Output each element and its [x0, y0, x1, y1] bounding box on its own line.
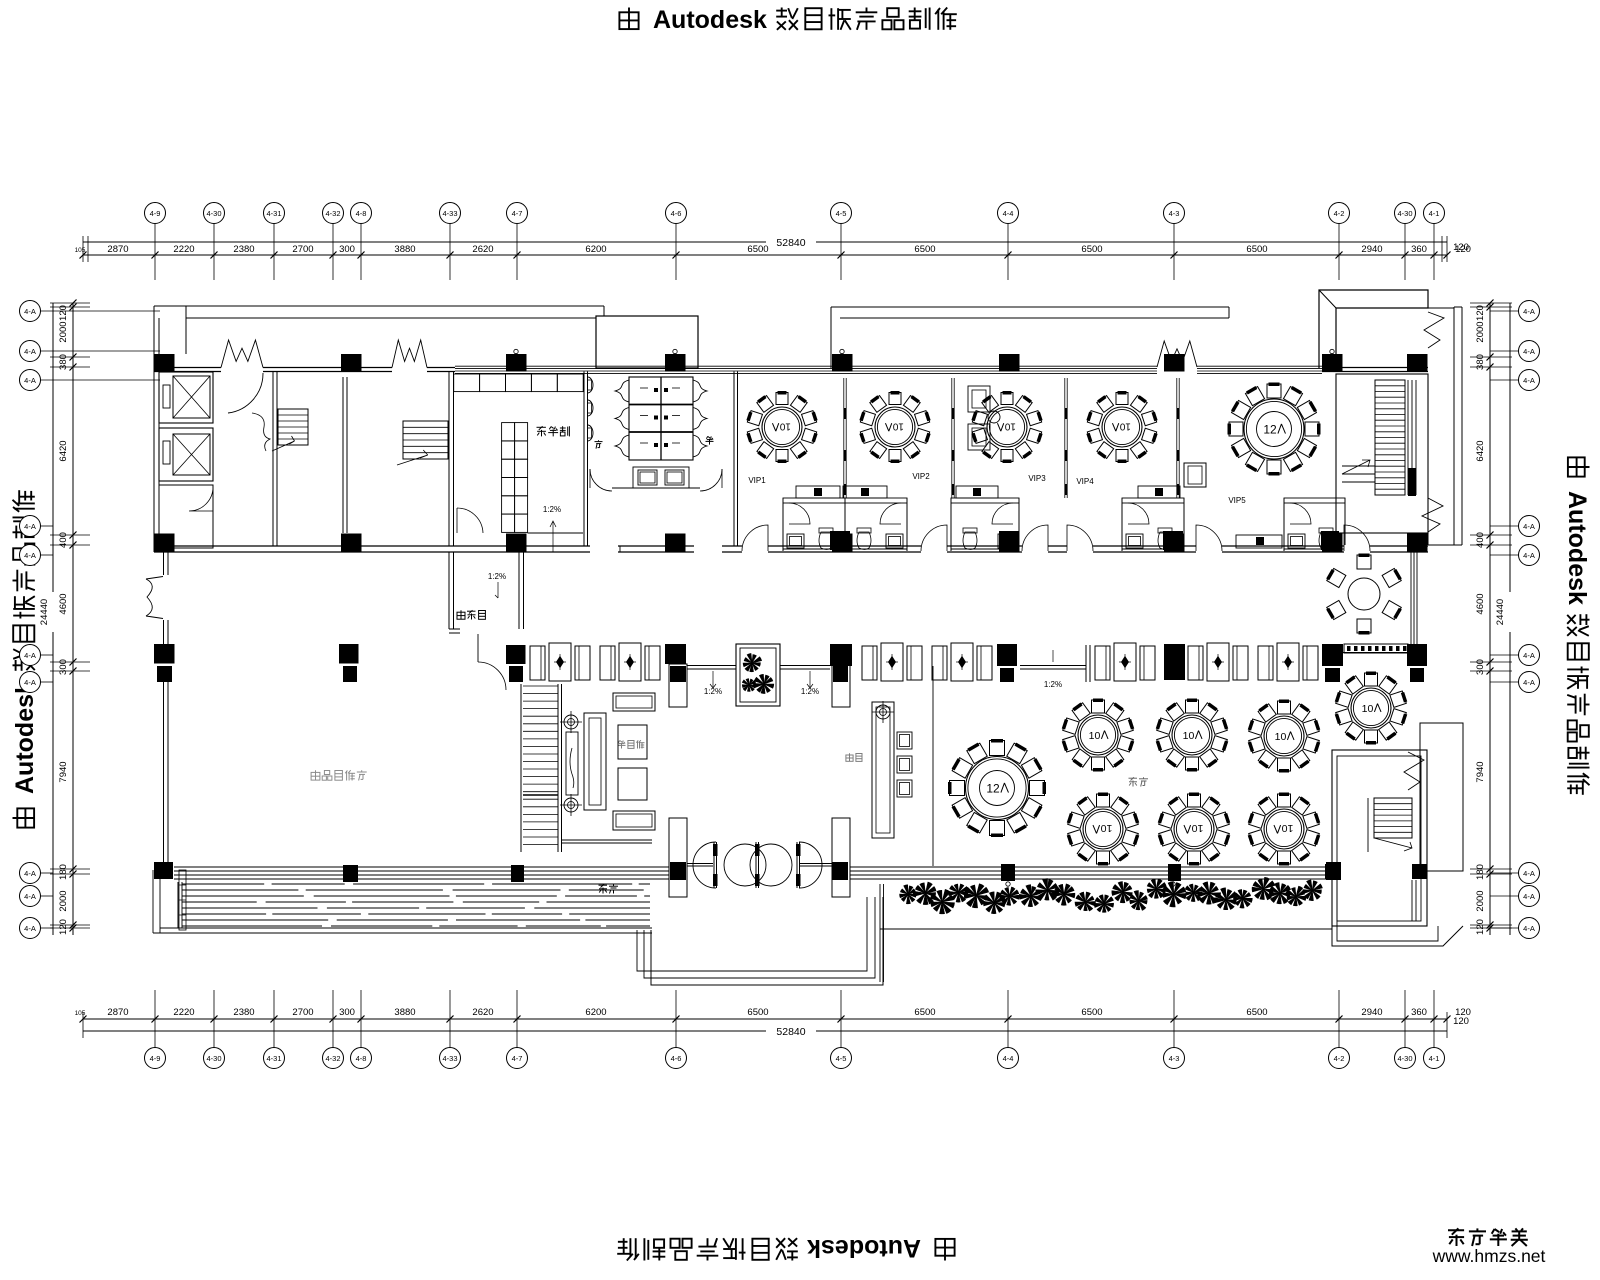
svg-text:2220: 2220 [173, 1007, 194, 1018]
svg-text:6200: 6200 [585, 1007, 606, 1018]
svg-text:10: 10 [1275, 731, 1287, 743]
svg-text:10: 10 [1089, 730, 1101, 742]
svg-text:12: 12 [1263, 422, 1277, 436]
svg-text:300: 300 [58, 659, 69, 675]
svg-text:6500: 6500 [1246, 244, 1267, 255]
svg-text:120: 120 [1475, 305, 1486, 321]
svg-text:4-3: 4-3 [1169, 209, 1180, 218]
svg-text:Autodesk: Autodesk [653, 6, 767, 34]
svg-text:Autodesk: Autodesk [1563, 491, 1591, 605]
svg-text:4-4: 4-4 [1003, 1054, 1014, 1063]
svg-text:2870: 2870 [107, 244, 128, 255]
svg-text:3880: 3880 [394, 244, 415, 255]
svg-text:4-7: 4-7 [512, 1054, 523, 1063]
svg-text:4-8: 4-8 [356, 1054, 367, 1063]
svg-text:4-A: 4-A [24, 376, 36, 385]
svg-text:4-9: 4-9 [150, 209, 161, 218]
svg-text:3880: 3880 [394, 1007, 415, 1018]
svg-text:380: 380 [1475, 354, 1486, 370]
svg-text:4-7: 4-7 [512, 209, 523, 218]
svg-text:VIP3: VIP3 [1028, 474, 1046, 483]
svg-text:380: 380 [58, 354, 69, 370]
svg-text:6420: 6420 [58, 440, 69, 461]
svg-text:6500: 6500 [914, 1007, 935, 1018]
svg-text:4-A: 4-A [24, 651, 36, 660]
svg-text:4-32: 4-32 [325, 209, 340, 218]
svg-text:120: 120 [58, 305, 69, 321]
svg-text:10: 10 [779, 420, 791, 431]
svg-text:2700: 2700 [292, 244, 313, 255]
svg-text:10: 10 [1101, 822, 1113, 834]
svg-text:4-4: 4-4 [1003, 209, 1014, 218]
svg-text:4-30: 4-30 [206, 209, 221, 218]
svg-text:1:2%: 1:2% [488, 572, 506, 581]
svg-text:6500: 6500 [747, 1007, 768, 1018]
svg-text:4-A: 4-A [24, 678, 36, 687]
svg-text:VIP4: VIP4 [1076, 477, 1094, 486]
svg-text:105: 105 [75, 1010, 86, 1017]
svg-text:300: 300 [339, 1007, 355, 1018]
svg-text:10: 10 [1192, 822, 1204, 834]
svg-text:10: 10 [1119, 420, 1131, 431]
svg-text:2380: 2380 [233, 1007, 254, 1018]
svg-text:2700: 2700 [292, 1007, 313, 1018]
svg-text:VIP1: VIP1 [748, 476, 766, 485]
svg-text:4-30: 4-30 [206, 1054, 221, 1063]
svg-text:4-3: 4-3 [1169, 1054, 1180, 1063]
svg-text:4-A: 4-A [1523, 551, 1535, 560]
svg-text:4-9: 4-9 [150, 1054, 161, 1063]
svg-text:120: 120 [1453, 1016, 1469, 1027]
svg-text:4-A: 4-A [24, 892, 36, 901]
svg-text:4-A: 4-A [1523, 376, 1535, 385]
svg-text:10: 10 [1004, 420, 1016, 431]
svg-text:4-A: 4-A [1523, 307, 1535, 316]
svg-text:120: 120 [1475, 919, 1486, 935]
svg-text:4-30: 4-30 [1397, 209, 1412, 218]
svg-text:6500: 6500 [1246, 1007, 1267, 1018]
svg-text:360: 360 [1411, 1007, 1427, 1018]
svg-text:6500: 6500 [1081, 1007, 1102, 1018]
svg-text:4-2: 4-2 [1334, 209, 1345, 218]
svg-text:Autodesk: Autodesk [11, 680, 39, 794]
svg-text:4-30: 4-30 [1397, 1054, 1412, 1063]
svg-text:2000: 2000 [58, 321, 69, 342]
svg-text:1:2%: 1:2% [543, 505, 561, 514]
svg-text:www.hmzs.net: www.hmzs.net [1432, 1246, 1546, 1266]
svg-text:4-A: 4-A [24, 551, 36, 560]
svg-text:4-A: 4-A [1523, 678, 1535, 687]
svg-text:105: 105 [75, 247, 86, 254]
svg-text:4-A: 4-A [24, 869, 36, 878]
svg-text:2220: 2220 [173, 244, 194, 255]
svg-text:4600: 4600 [58, 593, 69, 614]
svg-text:6500: 6500 [914, 244, 935, 255]
svg-text:4-31: 4-31 [266, 1054, 281, 1063]
svg-text:4-5: 4-5 [836, 1054, 847, 1063]
svg-text:2620: 2620 [472, 1007, 493, 1018]
svg-text:2000: 2000 [1475, 321, 1486, 342]
svg-text:4-5: 4-5 [836, 209, 847, 218]
svg-text:2940: 2940 [1361, 1007, 1382, 1018]
svg-text:Autodesk: Autodesk [807, 1234, 921, 1262]
svg-text:120: 120 [58, 919, 69, 935]
svg-text:4-6: 4-6 [671, 209, 682, 218]
svg-text:1:2%: 1:2% [1044, 680, 1062, 689]
svg-text:4-33: 4-33 [442, 209, 457, 218]
svg-text:180: 180 [58, 864, 69, 880]
svg-text:4-A: 4-A [24, 924, 36, 933]
svg-text:4-1: 4-1 [1429, 1054, 1440, 1063]
svg-text:300: 300 [339, 244, 355, 255]
svg-text:6420: 6420 [1475, 440, 1486, 461]
svg-text:10: 10 [1183, 730, 1195, 742]
svg-text:4-1: 4-1 [1429, 209, 1440, 218]
svg-text:4-A: 4-A [24, 347, 36, 356]
svg-text:24440: 24440 [1495, 599, 1506, 625]
svg-text:2380: 2380 [233, 244, 254, 255]
svg-text:24440: 24440 [39, 599, 50, 625]
svg-text:400: 400 [58, 532, 69, 548]
svg-text:12: 12 [986, 781, 1000, 795]
svg-text:2620: 2620 [472, 244, 493, 255]
svg-text:4-32: 4-32 [325, 1054, 340, 1063]
svg-text:4-A: 4-A [1523, 651, 1535, 660]
svg-text:4-A: 4-A [1523, 522, 1535, 531]
svg-text:4-A: 4-A [24, 307, 36, 316]
svg-text:180: 180 [1475, 864, 1486, 880]
svg-text:4-33: 4-33 [442, 1054, 457, 1063]
svg-text:7940: 7940 [58, 761, 69, 782]
svg-text:VIP5: VIP5 [1228, 496, 1246, 505]
svg-text:10: 10 [1362, 703, 1374, 715]
svg-text:4-31: 4-31 [266, 209, 281, 218]
svg-text:4-8: 4-8 [356, 209, 367, 218]
svg-text:300: 300 [1475, 659, 1486, 675]
svg-text:4-6: 4-6 [671, 1054, 682, 1063]
svg-text:10: 10 [1282, 822, 1294, 834]
svg-text:4-A: 4-A [1523, 924, 1535, 933]
svg-text:52840: 52840 [776, 1026, 805, 1038]
svg-text:6200: 6200 [585, 244, 606, 255]
svg-text:2940: 2940 [1361, 244, 1382, 255]
svg-text:10: 10 [892, 420, 904, 431]
svg-text:2870: 2870 [107, 1007, 128, 1018]
svg-text:VIP2: VIP2 [912, 472, 930, 481]
svg-text:4-A: 4-A [1523, 869, 1535, 878]
svg-text:2000: 2000 [1475, 890, 1486, 911]
svg-text:4-A: 4-A [1523, 892, 1535, 901]
svg-text:4-2: 4-2 [1334, 1054, 1345, 1063]
svg-text:6500: 6500 [747, 244, 768, 255]
svg-text:4-A: 4-A [1523, 347, 1535, 356]
svg-text:52840: 52840 [776, 237, 805, 249]
svg-text:2000: 2000 [58, 890, 69, 911]
svg-text:7940: 7940 [1475, 761, 1486, 782]
svg-text:6500: 6500 [1081, 244, 1102, 255]
svg-text:360: 360 [1411, 244, 1427, 255]
svg-text:4600: 4600 [1475, 593, 1486, 614]
svg-text:400: 400 [1475, 532, 1486, 548]
svg-text:4-A: 4-A [24, 522, 36, 531]
svg-text:120: 120 [1453, 242, 1469, 253]
